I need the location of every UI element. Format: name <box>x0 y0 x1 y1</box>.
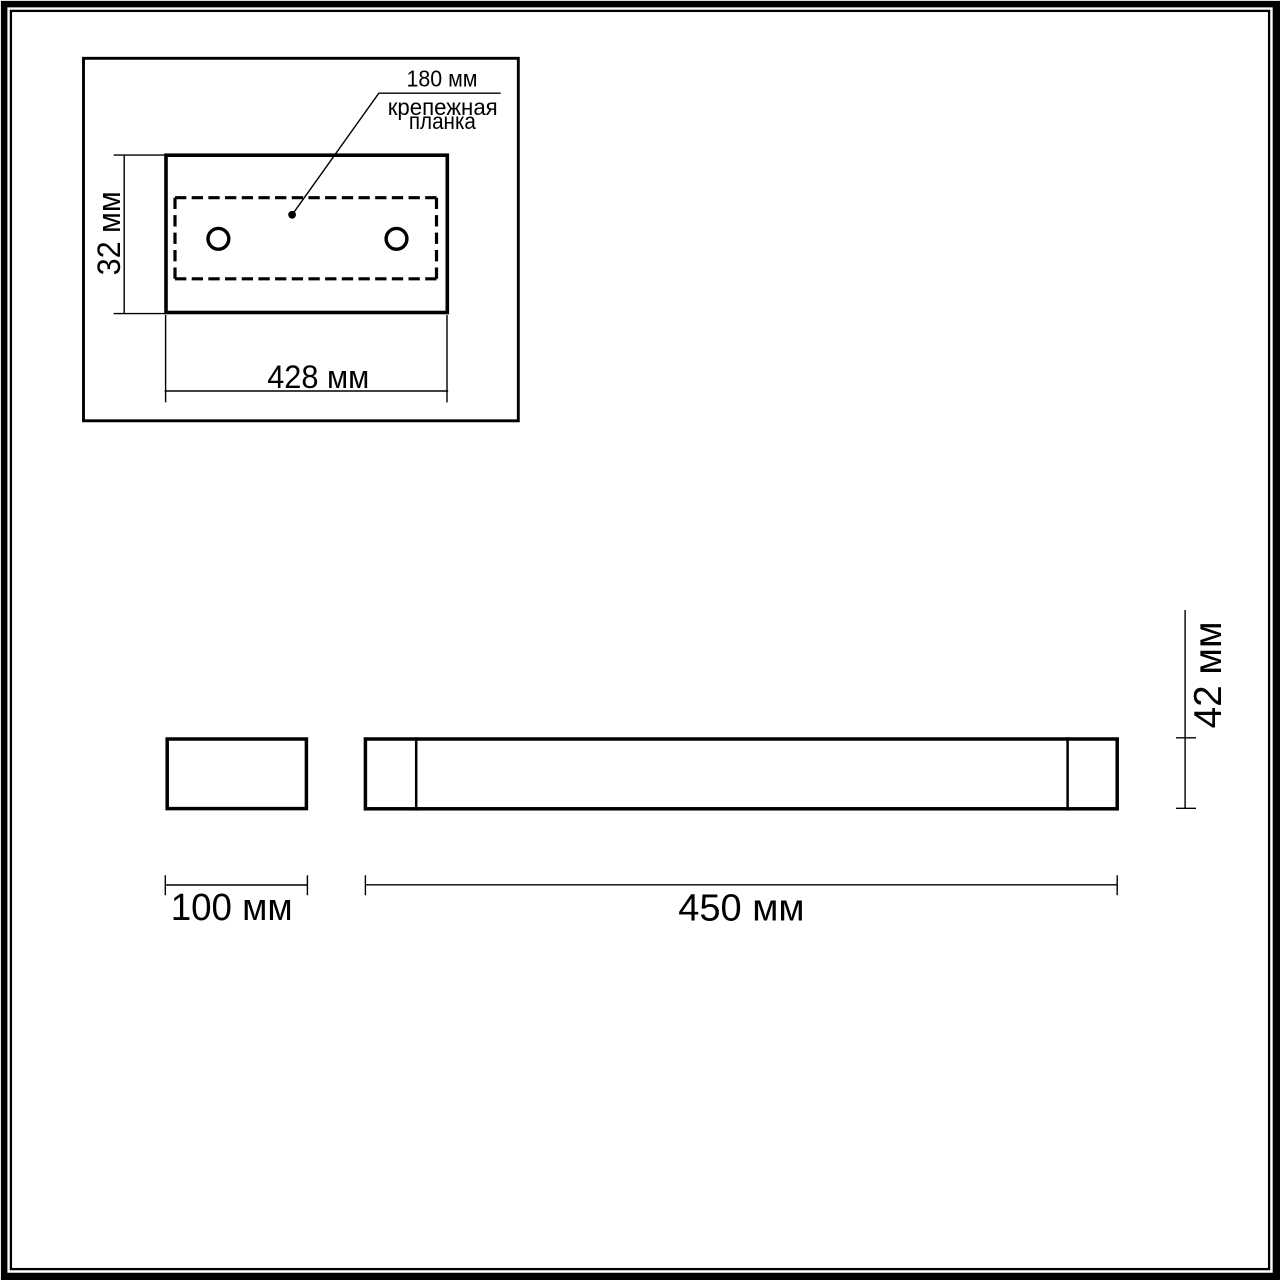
svg-text:планка: планка <box>409 108 476 134</box>
svg-text:100 мм: 100 мм <box>171 887 293 929</box>
svg-text:450 мм: 450 мм <box>678 888 804 930</box>
svg-text:180 мм: 180 мм <box>407 66 478 92</box>
svg-text:32 мм: 32 мм <box>91 191 127 275</box>
svg-text:428 мм: 428 мм <box>267 359 369 395</box>
svg-text:42 мм: 42 мм <box>1187 621 1230 728</box>
